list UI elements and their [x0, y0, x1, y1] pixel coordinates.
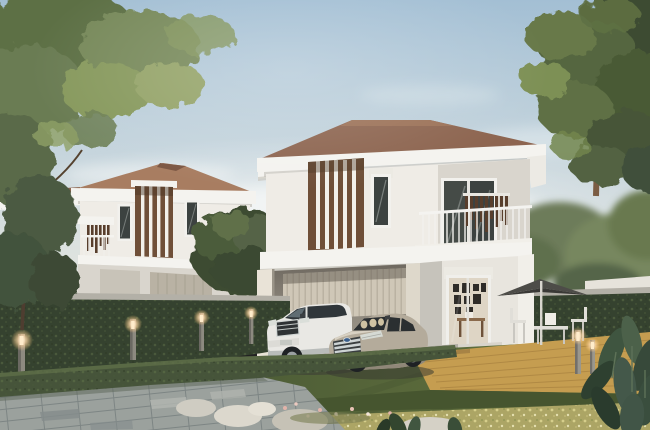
main-corner-column — [518, 254, 534, 352]
sedan-badge — [344, 338, 351, 342]
suv-license-plate — [280, 340, 292, 345]
parasol-pole — [540, 281, 542, 345]
left-house-window — [118, 204, 133, 241]
rendered-scene — [0, 0, 650, 430]
entrance-glass-door — [444, 267, 493, 350]
left-house-slat-screen — [131, 180, 177, 258]
